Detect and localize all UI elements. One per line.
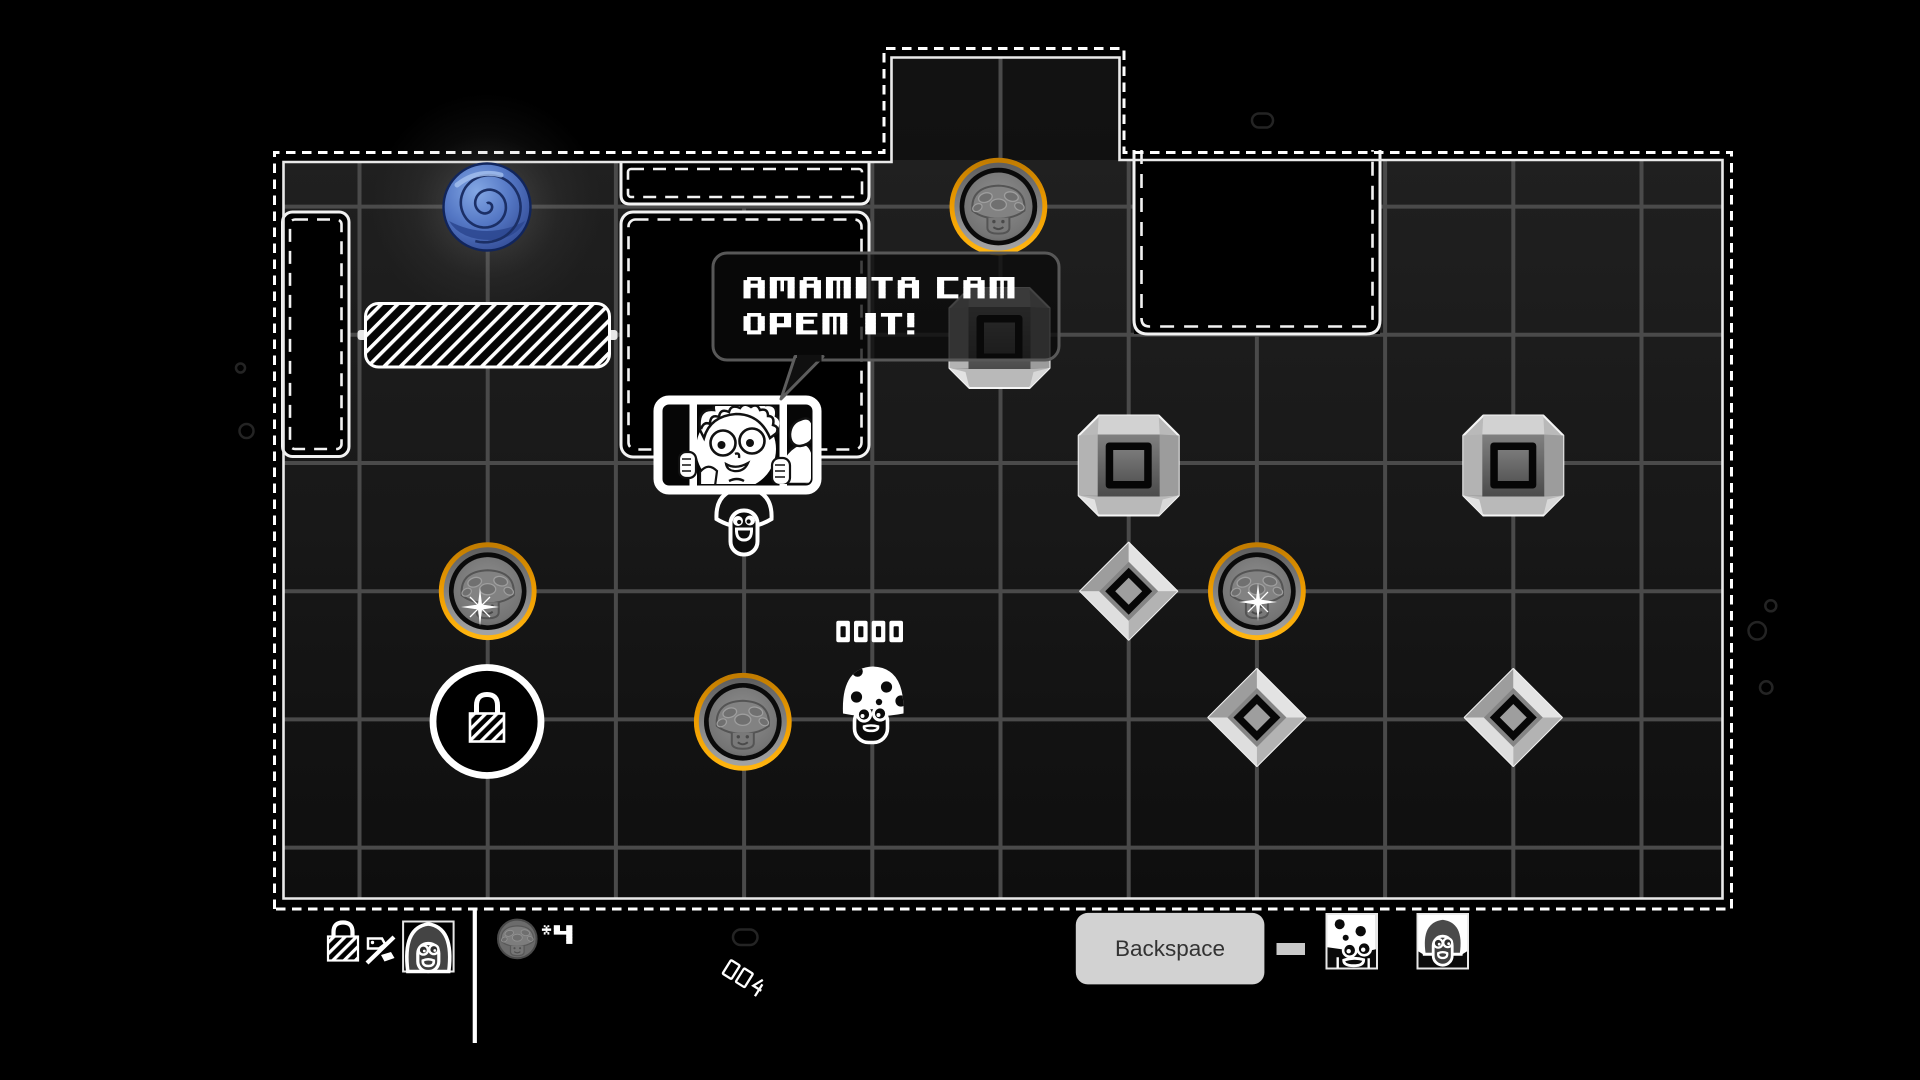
svg-text:Backspace: Backspace (1115, 936, 1225, 961)
